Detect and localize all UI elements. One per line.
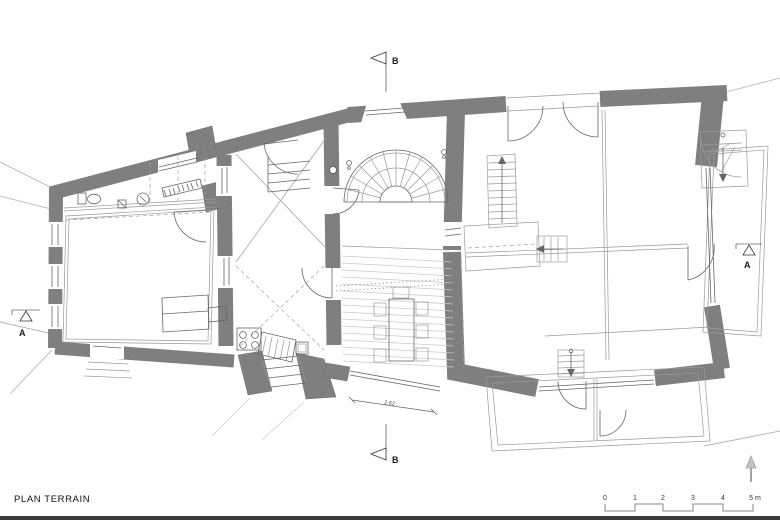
section-flag-b-top: B <box>371 52 399 92</box>
stair-arrow-down <box>719 174 727 182</box>
terrain-lines <box>0 78 780 446</box>
vault-hall <box>236 138 359 262</box>
porch-pier-left <box>238 351 272 395</box>
north-arrow-icon <box>746 456 756 482</box>
section-flag-b-bottom: B <box>371 424 399 465</box>
section-flag-a-right: A <box>736 244 762 270</box>
dimension-value: 2.62 <box>384 400 395 407</box>
section-label-b-bottom: B <box>392 455 399 465</box>
chair <box>393 287 409 298</box>
page-title: PLAN TERRAIN <box>14 494 90 505</box>
spiral-stair <box>342 150 450 251</box>
section-label-a-left: A <box>19 328 26 338</box>
scale-tick-0: 0 <box>603 495 607 502</box>
sheet-border-bottom <box>0 516 780 520</box>
wall-column <box>330 167 337 174</box>
exterior-walls <box>55 93 727 399</box>
scale-tick-4: 4 <box>721 495 725 502</box>
section-flag-a-left: A <box>12 310 40 338</box>
scale-bar: 0 1 2 3 4 5 m <box>603 495 761 511</box>
scale-tick-5: 5 m <box>749 495 761 502</box>
floor-plan-canvas: B B A A 2.62 0 1 2 3 4 <box>0 0 780 520</box>
chair <box>416 302 428 315</box>
kitchenette <box>236 266 332 362</box>
scale-tick-1: 1 <box>633 495 637 502</box>
stair-arrow-up <box>498 156 506 164</box>
scale-tick-3: 3 <box>691 495 695 502</box>
wall-openings <box>46 93 654 391</box>
scale-tick-2: 2 <box>661 495 665 502</box>
chair <box>416 348 428 361</box>
section-label-b-top: B <box>392 56 399 66</box>
drawing-sheet: B B A A 2.62 0 1 2 3 4 <box>0 0 780 520</box>
right-rooms <box>464 102 714 360</box>
chair <box>416 325 428 338</box>
annex <box>486 349 710 451</box>
section-label-a-right: A <box>744 260 751 270</box>
dimension-line: 2.62 <box>349 397 437 415</box>
